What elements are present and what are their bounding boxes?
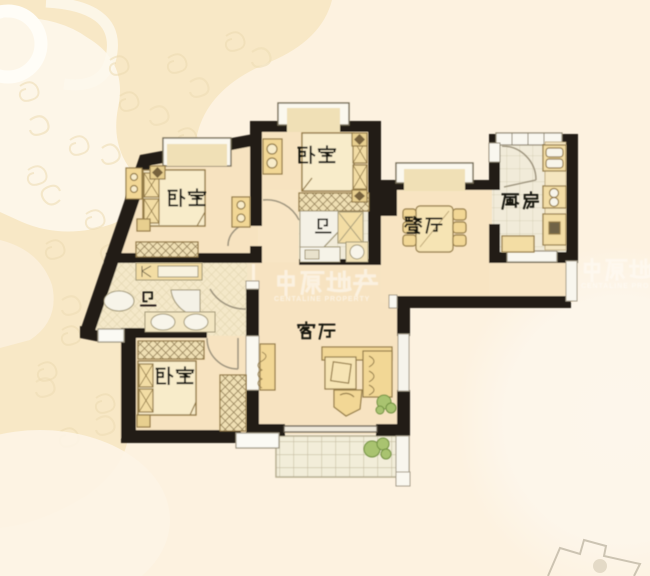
svg-text:CENTALINE PRO: CENTALINE PRO bbox=[581, 283, 649, 290]
svg-text:CENTALINE PROPERTY: CENTALINE PROPERTY bbox=[274, 296, 370, 303]
